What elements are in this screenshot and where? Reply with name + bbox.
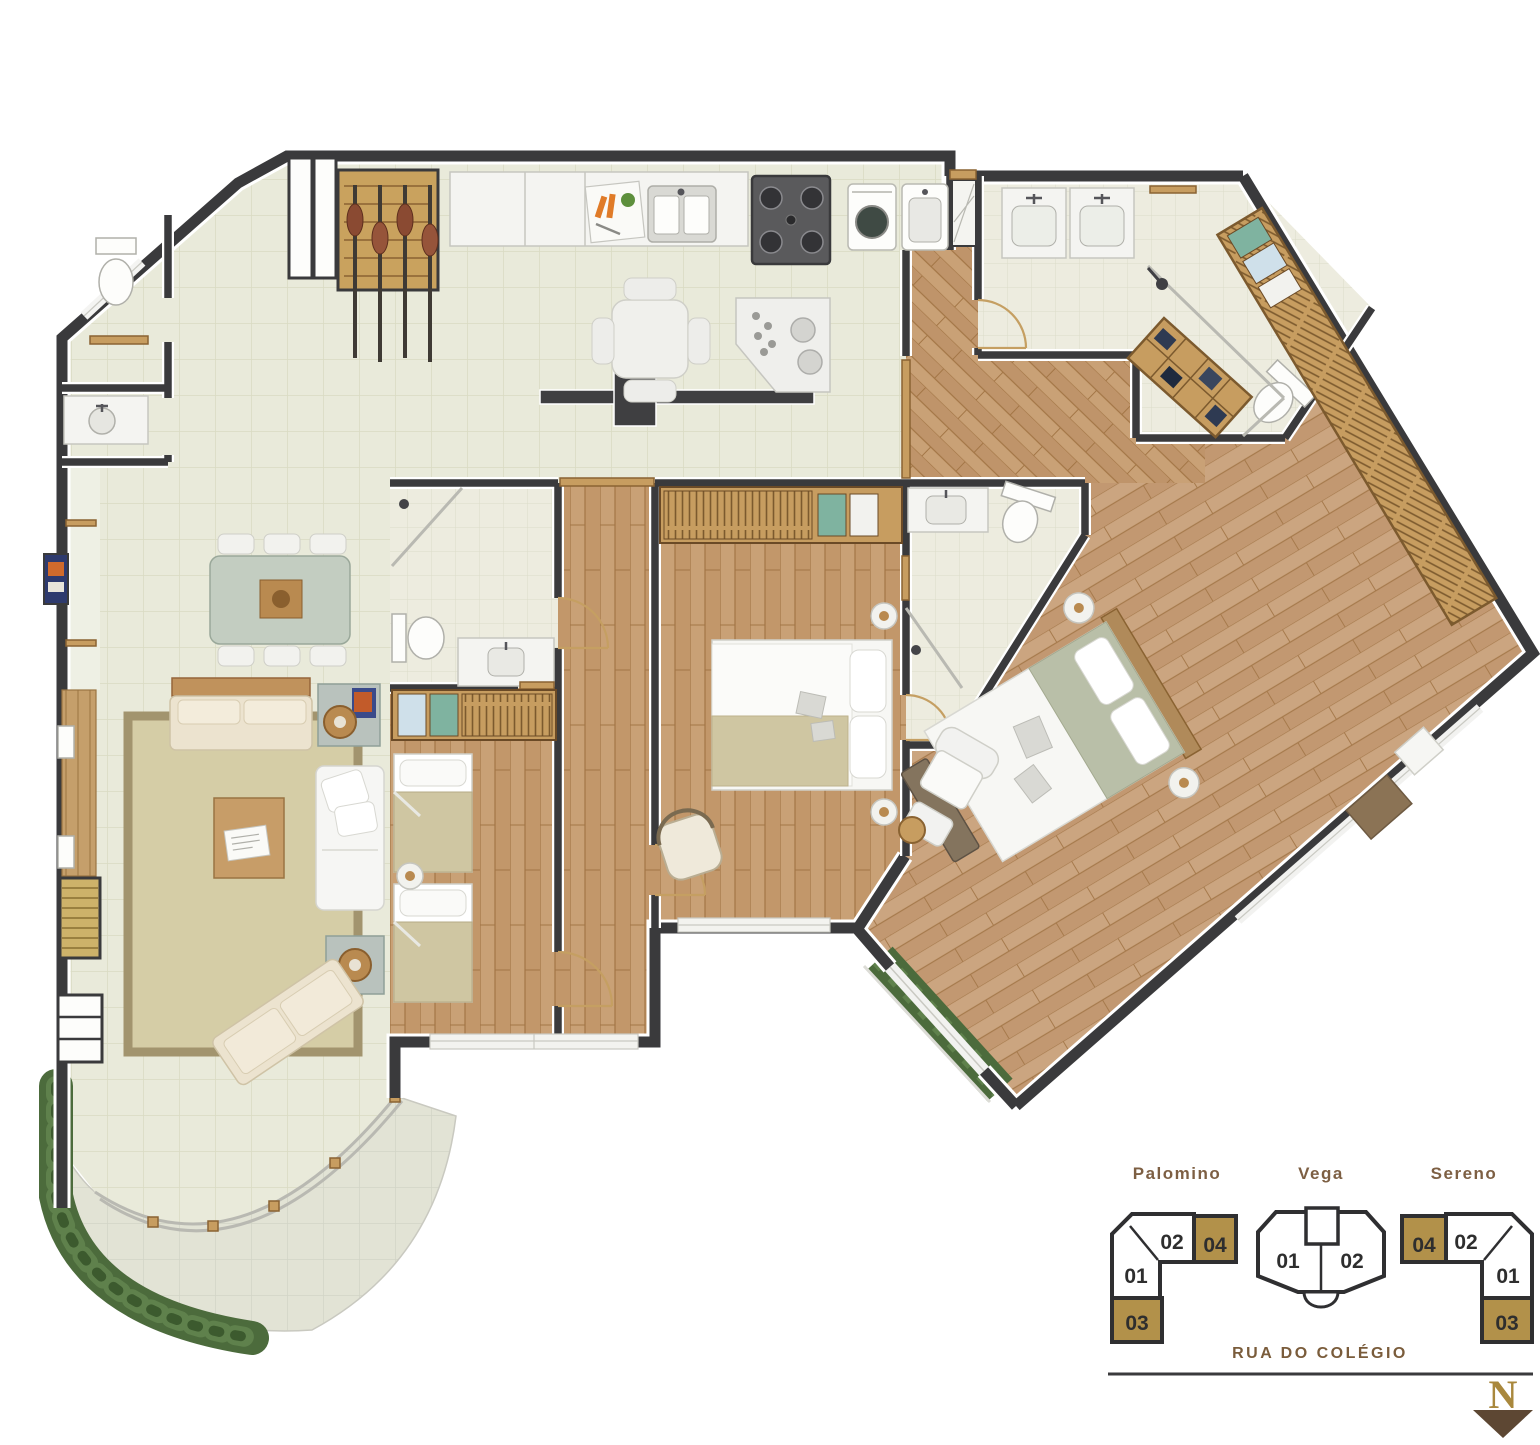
- door-mark: [66, 520, 96, 526]
- building-name-sereno: Sereno: [1431, 1164, 1498, 1183]
- kitchen-sink: [648, 186, 716, 242]
- duct-shaft: [314, 158, 336, 278]
- sofa-chaise: [316, 766, 384, 910]
- suite-side-table: [899, 817, 925, 843]
- sofa-main: [170, 696, 312, 750]
- side-table-a: [318, 684, 380, 746]
- wall-light: [58, 726, 74, 758]
- washbasin-counter: [64, 396, 148, 444]
- floor-plan-svg: Palomino Vega Sereno 02 04 01 03 01 02 0…: [0, 0, 1540, 1440]
- half-wall: [540, 390, 814, 404]
- towel-rail: [1150, 186, 1196, 193]
- unit-label: 04: [1412, 1234, 1436, 1257]
- shelf: [90, 336, 148, 344]
- door-threshold: [520, 682, 554, 689]
- unit-label: 01: [1124, 1265, 1148, 1288]
- unit-label: 02: [1340, 1250, 1363, 1273]
- building-name-vega: Vega: [1298, 1164, 1344, 1183]
- wardrobe: [660, 487, 902, 543]
- street-label: RUA DO COLÉGIO: [1232, 1343, 1408, 1362]
- railing-post: [330, 1158, 340, 1168]
- living-room: [128, 678, 384, 1087]
- cutting-board: [585, 181, 645, 242]
- vega-core: [1306, 1208, 1338, 1244]
- hall-threshold: [902, 360, 910, 478]
- towel-rail: [902, 556, 909, 600]
- wall-picture: [44, 554, 68, 604]
- duct-shaft: [289, 158, 312, 278]
- lamp-icon: [405, 871, 415, 881]
- twin-bed-2: [394, 884, 472, 1002]
- double-bed: [712, 640, 892, 790]
- unit-label: 01: [1276, 1250, 1300, 1273]
- vega-balcony: [1304, 1292, 1338, 1307]
- lamp-icon: [879, 611, 889, 621]
- railing-post: [148, 1217, 158, 1227]
- washing-machine: [848, 184, 896, 250]
- wardrobe: [392, 690, 556, 740]
- entrance-threshold: [950, 170, 976, 179]
- toilet: [392, 614, 444, 662]
- basin-counter: [458, 638, 554, 686]
- unit-label: 02: [1160, 1231, 1183, 1254]
- lamp-icon: [879, 807, 889, 817]
- unit-label: 03: [1125, 1312, 1148, 1335]
- wall-light: [58, 836, 74, 868]
- floor-plan-page: Palomino Vega Sereno 02 04 01 03 01 02 0…: [0, 0, 1540, 1440]
- louver-panel: [60, 878, 100, 958]
- twin-bed-1: [394, 754, 472, 872]
- toilet: [96, 238, 136, 305]
- shower-head-icon: [399, 499, 409, 509]
- unit-label: 03: [1495, 1312, 1518, 1335]
- railing-post: [208, 1221, 218, 1231]
- door-mark: [66, 640, 96, 646]
- unit-label: 01: [1496, 1265, 1520, 1288]
- unit-label: 04: [1203, 1234, 1227, 1257]
- laundry-tank: [902, 184, 948, 250]
- left-balcony: [58, 690, 102, 1062]
- triple-window-box: [58, 995, 102, 1062]
- basin-counter: [908, 488, 988, 532]
- coffee-table: [214, 798, 284, 878]
- railing-post: [269, 1201, 279, 1211]
- stove-cooktop: [752, 176, 830, 264]
- shower-head-icon: [911, 645, 921, 655]
- building-name-palomino: Palomino: [1133, 1164, 1222, 1183]
- dining-table-set: [210, 534, 350, 666]
- tv-console: [172, 678, 310, 696]
- unit-label: 02: [1454, 1231, 1477, 1254]
- corridor-threshold: [560, 478, 654, 486]
